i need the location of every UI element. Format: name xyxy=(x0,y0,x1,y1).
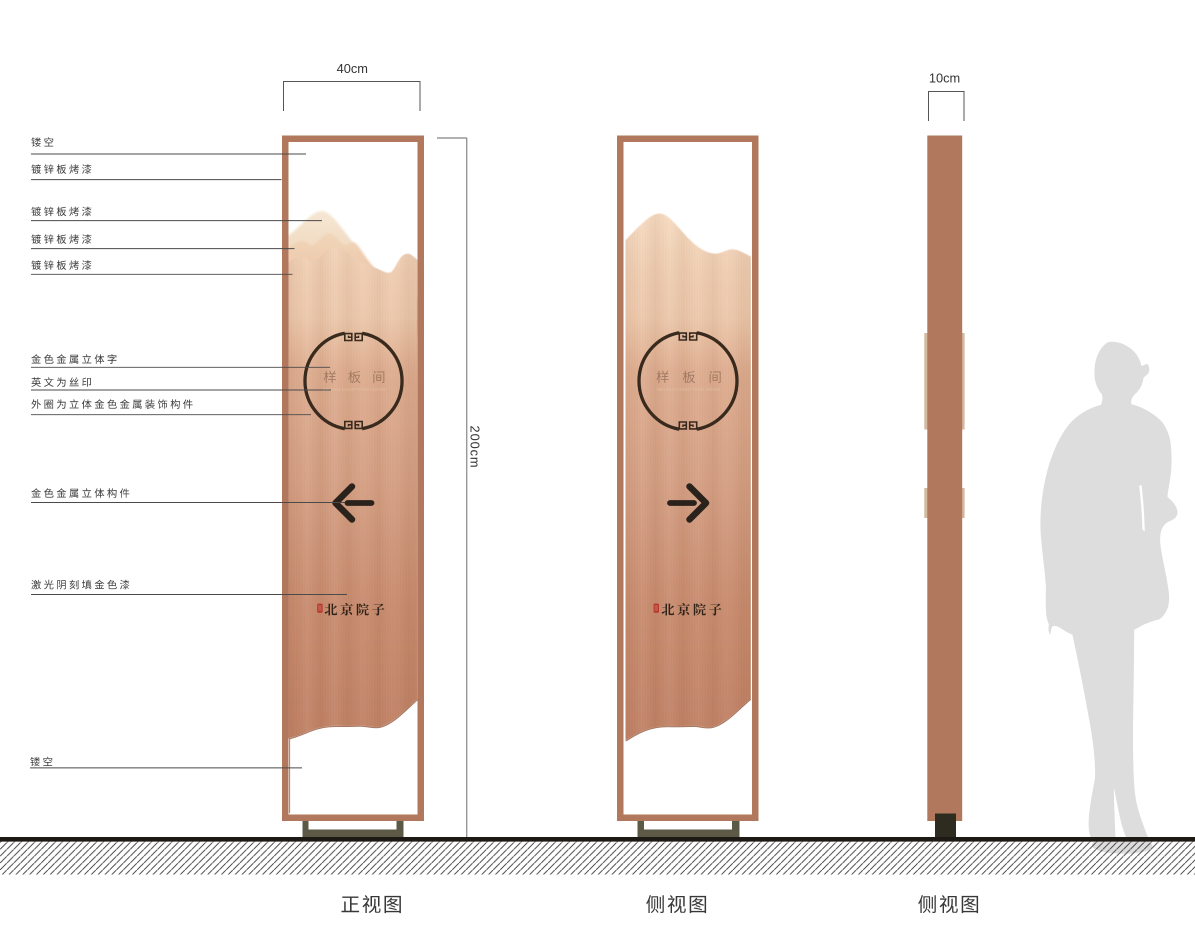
svg-text:200cm: 200cm xyxy=(468,426,483,469)
svg-text:10cm: 10cm xyxy=(929,70,960,85)
svg-text:BEIJING COURTYARD ROOM: BEIJING COURTYARD ROOM xyxy=(323,387,386,392)
svg-text:40cm: 40cm xyxy=(337,61,368,76)
svg-text:BEIJING COURTYARD ROOM: BEIJING COURTYARD ROOM xyxy=(657,387,720,392)
